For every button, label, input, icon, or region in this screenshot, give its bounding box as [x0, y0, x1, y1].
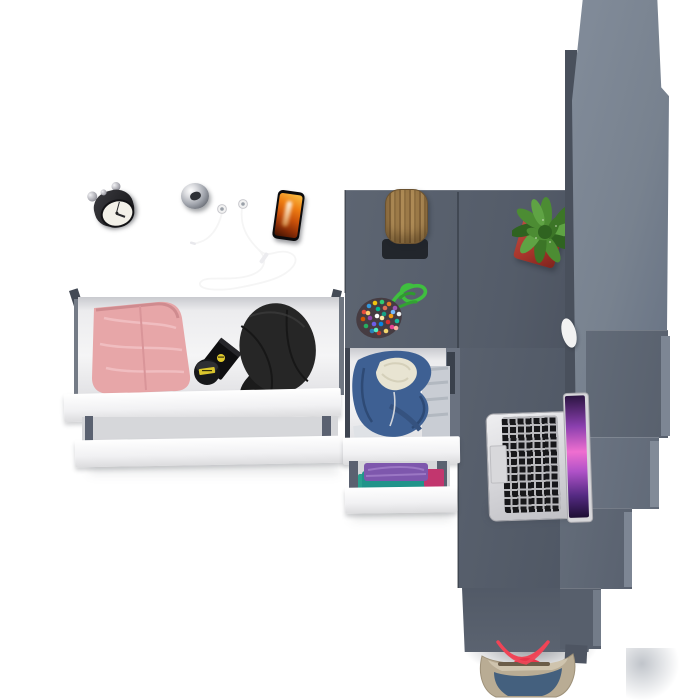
room-top-view-render — [0, 0, 679, 700]
alarm-clock — [87, 181, 143, 235]
round-tin — [194, 359, 220, 385]
stair-step-2-side — [650, 441, 659, 507]
floor-shadow — [626, 648, 679, 700]
panel-seam — [344, 190, 346, 293]
tote-bag — [468, 630, 588, 700]
stair-step-1-side — [661, 336, 670, 436]
drawer-rail — [85, 416, 93, 442]
pink-trousers — [92, 302, 190, 394]
hoodie-drawer-items — [350, 348, 456, 442]
laptop-trackpad — [490, 445, 508, 484]
stair-step-3-side — [624, 512, 632, 587]
laptop-screen — [565, 395, 589, 518]
drawer-front — [75, 436, 345, 468]
log-stool — [385, 189, 428, 244]
stair-step-4-side — [593, 590, 601, 646]
chest-front — [345, 486, 457, 514]
blue-hoodie — [352, 351, 431, 437]
beaded-pouch — [352, 276, 438, 342]
laptop-keyboard — [502, 415, 561, 513]
earphone-plug — [190, 241, 196, 245]
stair-step-2 — [581, 437, 659, 509]
black-cap — [219, 298, 325, 398]
purple-shirt — [364, 463, 428, 481]
laptop — [483, 392, 593, 526]
stair-step-1 — [586, 330, 668, 438]
open-drawer-items — [80, 298, 340, 398]
